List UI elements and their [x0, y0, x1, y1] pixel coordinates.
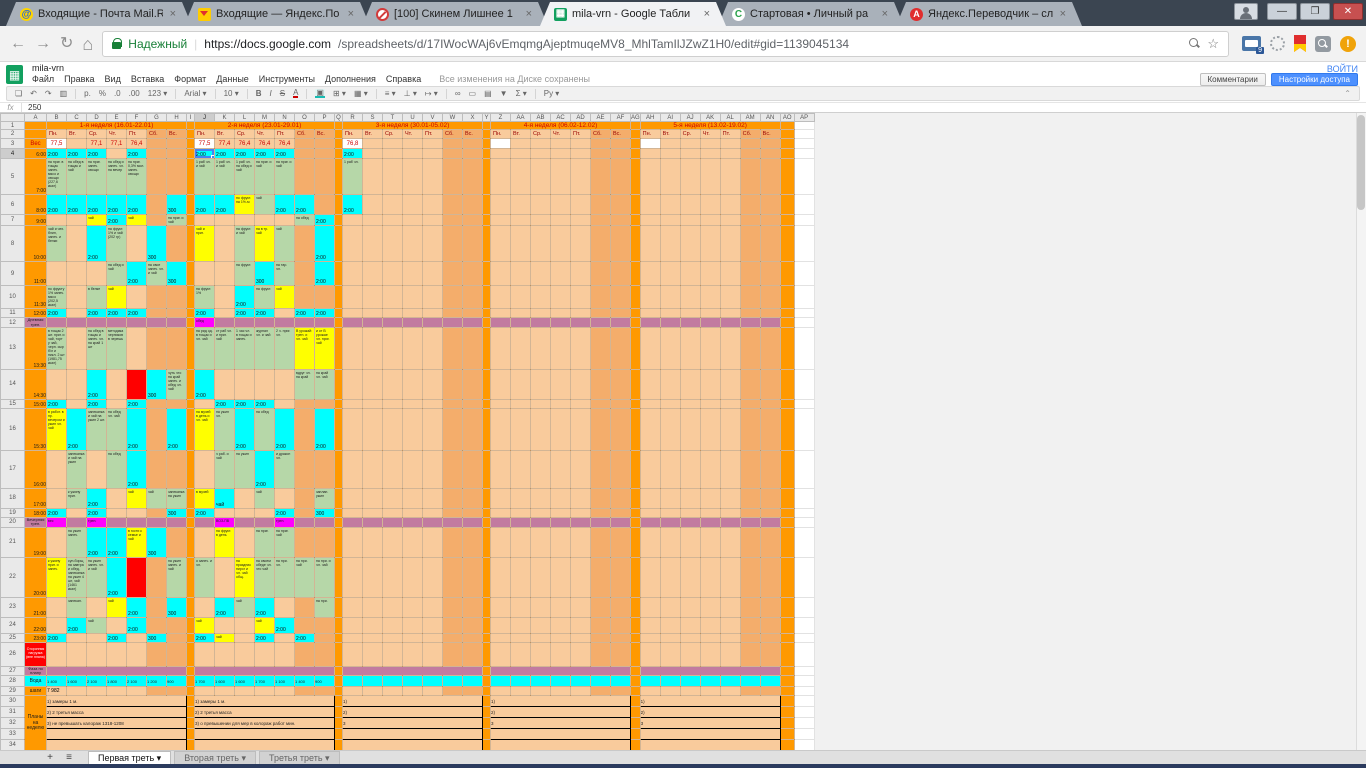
week-separator-cell[interactable] [335, 517, 343, 527]
grid-cell[interactable] [740, 527, 760, 557]
row-header[interactable]: 21 [1, 527, 25, 557]
grid-cell[interactable] [423, 262, 443, 286]
week-separator-cell[interactable] [631, 633, 641, 642]
week-separator-cell[interactable] [335, 666, 343, 676]
browser-tab[interactable]: @Входящие - Почта Mail.R× [6, 2, 192, 26]
grid-cell[interactable]: на ужин чл. [215, 408, 235, 450]
grid-cell[interactable] [463, 557, 483, 597]
grid-cell[interactable]: по фрукту 1% запеч. мясо (202,5 ккал) [47, 286, 67, 309]
grid-cell[interactable] [640, 527, 660, 557]
grid-cell[interactable] [571, 149, 591, 159]
grid-cell[interactable]: трен. [275, 517, 295, 527]
grid-cell[interactable] [383, 517, 403, 527]
column-header[interactable]: E [107, 114, 127, 122]
grid-cell[interactable] [403, 557, 423, 597]
grid-corner[interactable] [1, 114, 25, 122]
grid-cell[interactable] [423, 286, 443, 309]
row-header[interactable]: 30 [1, 696, 25, 707]
grid-cell[interactable] [295, 408, 315, 450]
grid-cell[interactable]: 2:00 [275, 195, 295, 215]
week-separator-cell[interactable] [483, 488, 491, 508]
grid-cell[interactable] [511, 262, 531, 286]
grid-cell[interactable] [463, 450, 483, 488]
grid-cell[interactable]: на своем обеде чл. что чай [255, 557, 275, 597]
grid-cell[interactable] [700, 226, 720, 262]
grid-cell[interactable] [720, 408, 740, 450]
grid-cell[interactable] [680, 399, 700, 408]
plan-row-cell[interactable]: 3 [343, 718, 483, 729]
grid-cell[interactable] [443, 527, 463, 557]
grid-cell[interactable] [67, 139, 87, 149]
grid-cell[interactable] [591, 215, 611, 226]
grid-cell[interactable] [343, 517, 363, 527]
week-separator-cell[interactable] [631, 309, 641, 318]
grid-cell[interactable]: к ужину приг. и запеч. [47, 557, 67, 597]
grid-cell[interactable] [680, 226, 700, 262]
row-header[interactable]: 26 [1, 642, 25, 666]
grid-cell[interactable] [740, 488, 760, 508]
grid-cell[interactable] [275, 642, 295, 666]
column-header[interactable]: AC [551, 114, 571, 122]
grid-cell[interactable]: 2:00 [215, 149, 235, 159]
grid-cell[interactable] [591, 399, 611, 408]
merge-cells-button[interactable]: ▦ ▾ [354, 89, 368, 98]
grid-cell[interactable] [531, 318, 551, 328]
grid-cell[interactable] [760, 557, 780, 597]
grid-cell[interactable] [700, 527, 720, 557]
grid-cell[interactable] [571, 262, 591, 286]
grid-cell[interactable] [640, 327, 660, 369]
grid-cell[interactable] [343, 226, 363, 262]
menu-item[interactable]: Файл [32, 73, 54, 85]
row-label-cell[interactable]: Дневная трен. [25, 318, 47, 328]
column-header[interactable]: Q [335, 114, 343, 122]
week-separator-cell[interactable] [780, 729, 794, 740]
week-separator-cell[interactable] [483, 617, 491, 633]
grid-cell[interactable] [147, 408, 167, 450]
grid-cell[interactable] [760, 309, 780, 318]
grid-cell[interactable] [295, 226, 315, 262]
column-header[interactable]: I [187, 114, 195, 122]
back-icon[interactable]: ← [10, 36, 26, 52]
grid-cell[interactable] [531, 327, 551, 369]
column-header[interactable]: AE [591, 114, 611, 122]
grid-cell[interactable]: на свое запеч. чл. и чай [147, 262, 167, 286]
alert-extension-icon[interactable]: ! [1340, 36, 1356, 52]
grid-cell[interactable] [443, 687, 463, 696]
week-separator-cell[interactable] [187, 226, 195, 262]
grid-cell[interactable] [363, 327, 383, 369]
grid-cell[interactable] [591, 139, 611, 149]
grid-cell[interactable] [740, 676, 760, 687]
grid-cell[interactable]: на фрукт. [235, 262, 255, 286]
grid-cell[interactable] [760, 488, 780, 508]
week-separator-cell[interactable] [483, 286, 491, 309]
phase-band-cell[interactable] [343, 666, 483, 676]
grid-cell[interactable] [551, 488, 571, 508]
grid-cell[interactable]: на обед [295, 215, 315, 226]
plan-row-cell[interactable] [343, 740, 483, 750]
grid-cell[interactable] [127, 318, 147, 328]
week-separator-cell[interactable] [187, 517, 195, 527]
grid-cell[interactable] [551, 676, 571, 687]
grid-cell[interactable] [511, 450, 531, 488]
grid-cell[interactable] [720, 633, 740, 642]
grid-cell[interactable]: 2 ч. приг. чл. [275, 327, 295, 369]
grid-cell[interactable] [215, 309, 235, 318]
column-header[interactable]: V [423, 114, 443, 122]
time-cell[interactable]: 6:00 [25, 149, 47, 159]
grid-cell[interactable] [343, 508, 363, 517]
grid-cell[interactable]: в гости к семье и чай [127, 527, 147, 557]
week-separator-cell[interactable] [631, 676, 641, 687]
column-header[interactable]: AA [511, 114, 531, 122]
grid-cell[interactable] [343, 450, 363, 488]
grid-cell[interactable] [491, 139, 511, 149]
grid-cell[interactable] [740, 617, 760, 633]
grid-cell[interactable] [343, 327, 363, 369]
grid-cell[interactable] [363, 318, 383, 328]
time-cell[interactable]: 9:00 [25, 215, 47, 226]
plan-row-cell[interactable]: 2) 2 третья масса [47, 707, 187, 718]
functions-button[interactable]: Σ ▾ [516, 89, 527, 98]
grid-cell[interactable] [215, 687, 235, 696]
increase-decimals-button[interactable]: .00 [129, 89, 140, 98]
grid-cell[interactable] [463, 215, 483, 226]
grid-cell[interactable] [571, 286, 591, 309]
column-header[interactable]: AF [611, 114, 631, 122]
grid-cell[interactable] [551, 508, 571, 517]
grid-cell[interactable] [640, 617, 660, 633]
grid-cell[interactable] [67, 318, 87, 328]
week-separator-cell[interactable] [187, 696, 195, 707]
grid-cell[interactable]: 2:00 [235, 286, 255, 309]
grid-cell[interactable] [531, 159, 551, 195]
grid-cell[interactable] [720, 215, 740, 226]
grid-cell[interactable] [107, 149, 127, 159]
grid-cell[interactable] [680, 517, 700, 527]
grid-cell[interactable] [383, 642, 403, 666]
grid-cell[interactable] [660, 687, 680, 696]
week-separator-cell[interactable] [335, 740, 343, 750]
grid-cell[interactable] [591, 450, 611, 488]
grid-cell[interactable] [403, 508, 423, 517]
row-header[interactable]: 18 [1, 488, 25, 508]
grid-cell[interactable] [215, 642, 235, 666]
week-separator-cell[interactable] [631, 139, 641, 149]
time-cell[interactable]: 22:00 [25, 617, 47, 633]
week-separator-cell[interactable] [631, 408, 641, 450]
tab-close-icon[interactable]: × [1058, 8, 1068, 20]
grid-cell[interactable] [551, 617, 571, 633]
grid-cell[interactable] [255, 517, 275, 527]
grid-cell[interactable] [740, 369, 760, 399]
grid-cell[interactable] [215, 226, 235, 262]
grid-cell[interactable] [147, 327, 167, 369]
grid-cell[interactable]: 1 100 [275, 676, 295, 687]
profile-button[interactable] [1234, 3, 1258, 20]
grid-cell[interactable] [760, 617, 780, 633]
grid-cell[interactable] [720, 139, 740, 149]
grid-cell[interactable]: обед [195, 318, 215, 328]
grid-cell[interactable] [235, 318, 255, 328]
grid-cell[interactable]: 2:00 [275, 408, 295, 450]
grid-cell[interactable] [551, 226, 571, 262]
week-separator-cell[interactable] [187, 139, 195, 149]
grid-cell[interactable] [611, 149, 631, 159]
grid-cell[interactable] [531, 399, 551, 408]
grid-cell[interactable] [127, 517, 147, 527]
grid-cell[interactable] [531, 597, 551, 617]
grid-cell[interactable]: 300 [147, 633, 167, 642]
grid-cell[interactable] [531, 508, 551, 517]
grid-cell[interactable] [275, 633, 295, 642]
grid-cell[interactable] [720, 262, 740, 286]
grid-cell[interactable]: 1 600 [215, 676, 235, 687]
grid-cell[interactable] [760, 159, 780, 195]
grid-cell[interactable] [195, 450, 215, 488]
italic-button[interactable]: I [270, 89, 272, 98]
week-separator-cell[interactable] [187, 676, 195, 687]
grid-cell[interactable] [67, 369, 87, 399]
column-header[interactable]: W [443, 114, 463, 122]
grid-cell[interactable]: в работ. в пр. вечером и ужин чл. чай [47, 408, 67, 450]
week-separator-cell[interactable] [483, 318, 491, 328]
grid-cell[interactable] [167, 159, 187, 195]
week-separator-cell[interactable] [335, 642, 343, 666]
grid-cell[interactable] [47, 597, 67, 617]
grid-cell[interactable] [611, 369, 631, 399]
grid-cell[interactable] [660, 318, 680, 328]
week-separator-cell[interactable] [631, 149, 641, 159]
grid-cell[interactable] [551, 527, 571, 557]
grid-cell[interactable] [403, 286, 423, 309]
grid-cell[interactable] [491, 633, 511, 642]
grid-cell[interactable] [147, 517, 167, 527]
grid-cell[interactable] [363, 139, 383, 149]
grid-cell[interactable]: 300 [167, 195, 187, 215]
row-header[interactable]: 34 [1, 740, 25, 750]
week-separator-cell[interactable] [780, 408, 794, 450]
grid-cell[interactable] [571, 687, 591, 696]
grid-cell[interactable]: на ужин запеч. чл. и чай [87, 557, 107, 597]
grid-cell[interactable]: 300 [167, 262, 187, 286]
grid-cell[interactable] [700, 327, 720, 369]
empty-cell[interactable] [794, 130, 814, 139]
share-button[interactable]: Настройки доступа [1271, 73, 1358, 86]
grid-cell[interactable]: 2:00 [255, 149, 275, 159]
grid-cell[interactable] [87, 318, 107, 328]
grid-cell[interactable] [740, 687, 760, 696]
grid-cell[interactable] [591, 318, 611, 328]
grid-cell[interactable] [551, 286, 571, 309]
grid-cell[interactable] [611, 408, 631, 450]
grid-cell[interactable] [67, 687, 87, 696]
grid-cell[interactable] [571, 408, 591, 450]
grid-cell[interactable] [147, 215, 167, 226]
grid-cell[interactable] [127, 633, 147, 642]
grid-cell[interactable]: 2:00 [127, 408, 147, 450]
week-separator-cell[interactable] [483, 687, 491, 696]
grid-cell[interactable]: на фрукт. [255, 286, 275, 309]
grid-cell[interactable]: о запеч. и чл. [195, 557, 215, 597]
grid-cell[interactable] [343, 617, 363, 633]
grid-cell[interactable] [720, 318, 740, 328]
grid-cell[interactable]: 2:00 [215, 597, 235, 617]
grid-cell[interactable]: 2:00 [87, 527, 107, 557]
grid-cell[interactable] [47, 527, 67, 557]
week-separator-cell[interactable] [631, 617, 641, 633]
grid-cell[interactable] [383, 450, 403, 488]
grid-cell[interactable] [295, 597, 315, 617]
grid-cell[interactable] [47, 369, 67, 399]
minimize-button[interactable]: — [1267, 3, 1297, 20]
grid-cell[interactable] [423, 327, 443, 369]
week-separator-cell[interactable] [335, 450, 343, 488]
grid-cell[interactable] [720, 195, 740, 215]
grid-cell[interactable]: 1 600 [67, 676, 87, 687]
grid-cell[interactable] [167, 399, 187, 408]
grid-cell[interactable] [107, 318, 127, 328]
grid-cell[interactable] [275, 215, 295, 226]
grid-cell[interactable] [740, 309, 760, 318]
grid-cell[interactable] [660, 508, 680, 517]
grid-cell[interactable] [423, 527, 443, 557]
grid-cell[interactable]: Вт. [363, 130, 383, 139]
row-header[interactable]: 1 [1, 122, 25, 130]
empty-cell[interactable] [794, 149, 814, 159]
week-separator-cell[interactable] [483, 642, 491, 666]
dots-extension-icon[interactable] [1270, 36, 1285, 51]
grid-cell[interactable] [235, 633, 255, 642]
grid-cell[interactable] [591, 557, 611, 597]
grid-cell[interactable] [660, 327, 680, 369]
grid-cell[interactable] [343, 286, 363, 309]
grid-cell[interactable] [363, 633, 383, 642]
grid-cell[interactable] [343, 215, 363, 226]
grid-cell[interactable] [47, 215, 67, 226]
grid-cell[interactable] [740, 318, 760, 328]
grid-cell[interactable] [760, 149, 780, 159]
week-separator-cell[interactable] [780, 527, 794, 557]
grid-cell[interactable]: чай [255, 488, 275, 508]
grid-cell[interactable]: 2:00 [107, 633, 127, 642]
grid-cell[interactable]: 2:00 [87, 309, 107, 318]
grid-cell[interactable] [571, 508, 591, 517]
grid-cell[interactable] [127, 286, 147, 309]
grid-cell[interactable] [275, 309, 295, 318]
row-label-cell[interactable]: Фаза по плану [25, 666, 47, 676]
grid-cell[interactable] [443, 642, 463, 666]
grid-cell[interactable]: чай и приг. [195, 226, 215, 262]
grid-cell[interactable] [700, 399, 720, 408]
grid-cell[interactable] [511, 597, 531, 617]
week-separator-cell[interactable] [187, 488, 195, 508]
time-cell[interactable]: 16:00 [25, 450, 47, 488]
grid-cell[interactable] [491, 508, 511, 517]
grid-cell[interactable] [551, 215, 571, 226]
grid-cell[interactable] [295, 149, 315, 159]
grid-cell[interactable]: на приг. и чай [167, 215, 187, 226]
collapse-toolbar-icon[interactable]: ⌃ [1344, 89, 1351, 98]
week-separator-cell[interactable] [631, 488, 641, 508]
grid-cell[interactable] [315, 617, 335, 633]
grid-cell[interactable] [463, 408, 483, 450]
week-separator-cell[interactable] [335, 696, 343, 707]
grid-cell[interactable] [463, 527, 483, 557]
week-separator-cell[interactable] [483, 517, 491, 527]
grid-cell[interactable] [591, 286, 611, 309]
grid-cell[interactable] [343, 642, 363, 666]
empty-cell[interactable] [794, 597, 814, 617]
grid-cell[interactable] [700, 597, 720, 617]
grid-cell[interactable] [383, 408, 403, 450]
column-header[interactable]: AB [531, 114, 551, 122]
grid-cell[interactable] [463, 642, 483, 666]
grid-cell[interactable]: 76,8 [343, 139, 363, 149]
grid-cell[interactable] [571, 450, 591, 488]
grid-cell[interactable]: 300 [147, 369, 167, 399]
week-separator-cell[interactable] [780, 318, 794, 328]
grid-cell[interactable] [740, 262, 760, 286]
grid-cell[interactable] [235, 488, 255, 508]
grid-cell[interactable] [720, 676, 740, 687]
grid-cell[interactable] [195, 527, 215, 557]
grid-cell[interactable] [363, 488, 383, 508]
grid-cell[interactable] [660, 215, 680, 226]
grid-cell[interactable] [255, 687, 275, 696]
grid-cell[interactable] [571, 139, 591, 149]
grid-cell[interactable] [531, 149, 551, 159]
grid-cell[interactable] [443, 597, 463, 617]
grid-cell[interactable] [443, 508, 463, 517]
grid-cell[interactable] [127, 557, 147, 597]
grid-cell[interactable] [403, 517, 423, 527]
grid-cell[interactable]: Ср. [235, 130, 255, 139]
grid-cell[interactable] [660, 642, 680, 666]
undo-icon[interactable]: ↶ [30, 89, 37, 98]
grid-cell[interactable] [491, 488, 511, 508]
grid-cell[interactable]: Пн. [47, 130, 67, 139]
grid-cell[interactable]: в белке [87, 286, 107, 309]
week-separator-cell[interactable] [631, 740, 641, 750]
grid-cell[interactable] [167, 226, 187, 262]
empty-cell[interactable] [794, 159, 814, 195]
grid-cell[interactable] [700, 687, 720, 696]
grid-cell[interactable] [591, 517, 611, 527]
week-separator-cell[interactable] [187, 617, 195, 633]
grid-cell[interactable] [295, 399, 315, 408]
week-separator-cell[interactable] [780, 130, 794, 139]
grid-cell[interactable] [720, 488, 740, 508]
grid-cell[interactable] [720, 597, 740, 617]
grid-cell[interactable] [363, 309, 383, 318]
grid-cell[interactable]: Вт. [215, 130, 235, 139]
grid-cell[interactable] [551, 633, 571, 642]
grid-cell[interactable]: трен. [87, 517, 107, 527]
grid-cell[interactable]: журнал чл. и чай [255, 327, 275, 369]
grid-cell[interactable] [423, 408, 443, 450]
grid-cell[interactable] [660, 226, 680, 262]
week-separator-cell[interactable] [483, 450, 491, 488]
grid-cell[interactable] [167, 633, 187, 642]
grid-cell[interactable] [67, 399, 87, 408]
week-separator-cell[interactable] [631, 729, 641, 740]
grid-cell[interactable] [571, 309, 591, 318]
grid-cell[interactable]: 1 600 [235, 676, 255, 687]
grid-cell[interactable] [295, 517, 315, 527]
grid-cell[interactable]: 2:00 [255, 399, 275, 408]
